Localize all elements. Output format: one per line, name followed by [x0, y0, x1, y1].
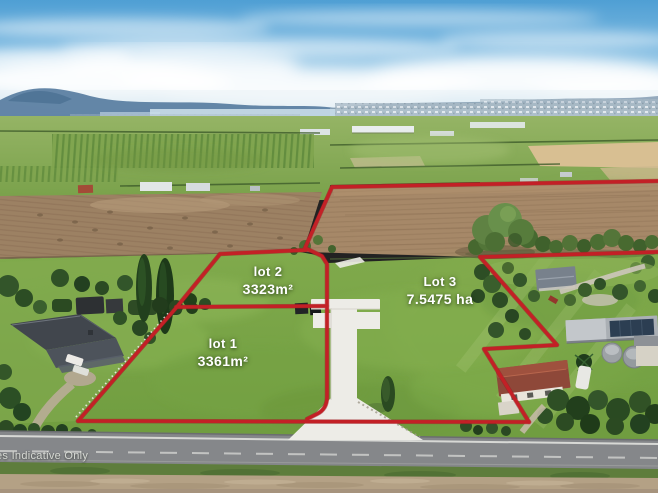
aerial-photo-art [0, 0, 658, 493]
main-road [0, 431, 658, 493]
aerial-photo: lot 2 3323m² Lot 3 7.5475 ha lot 1 3361m… [0, 0, 658, 493]
